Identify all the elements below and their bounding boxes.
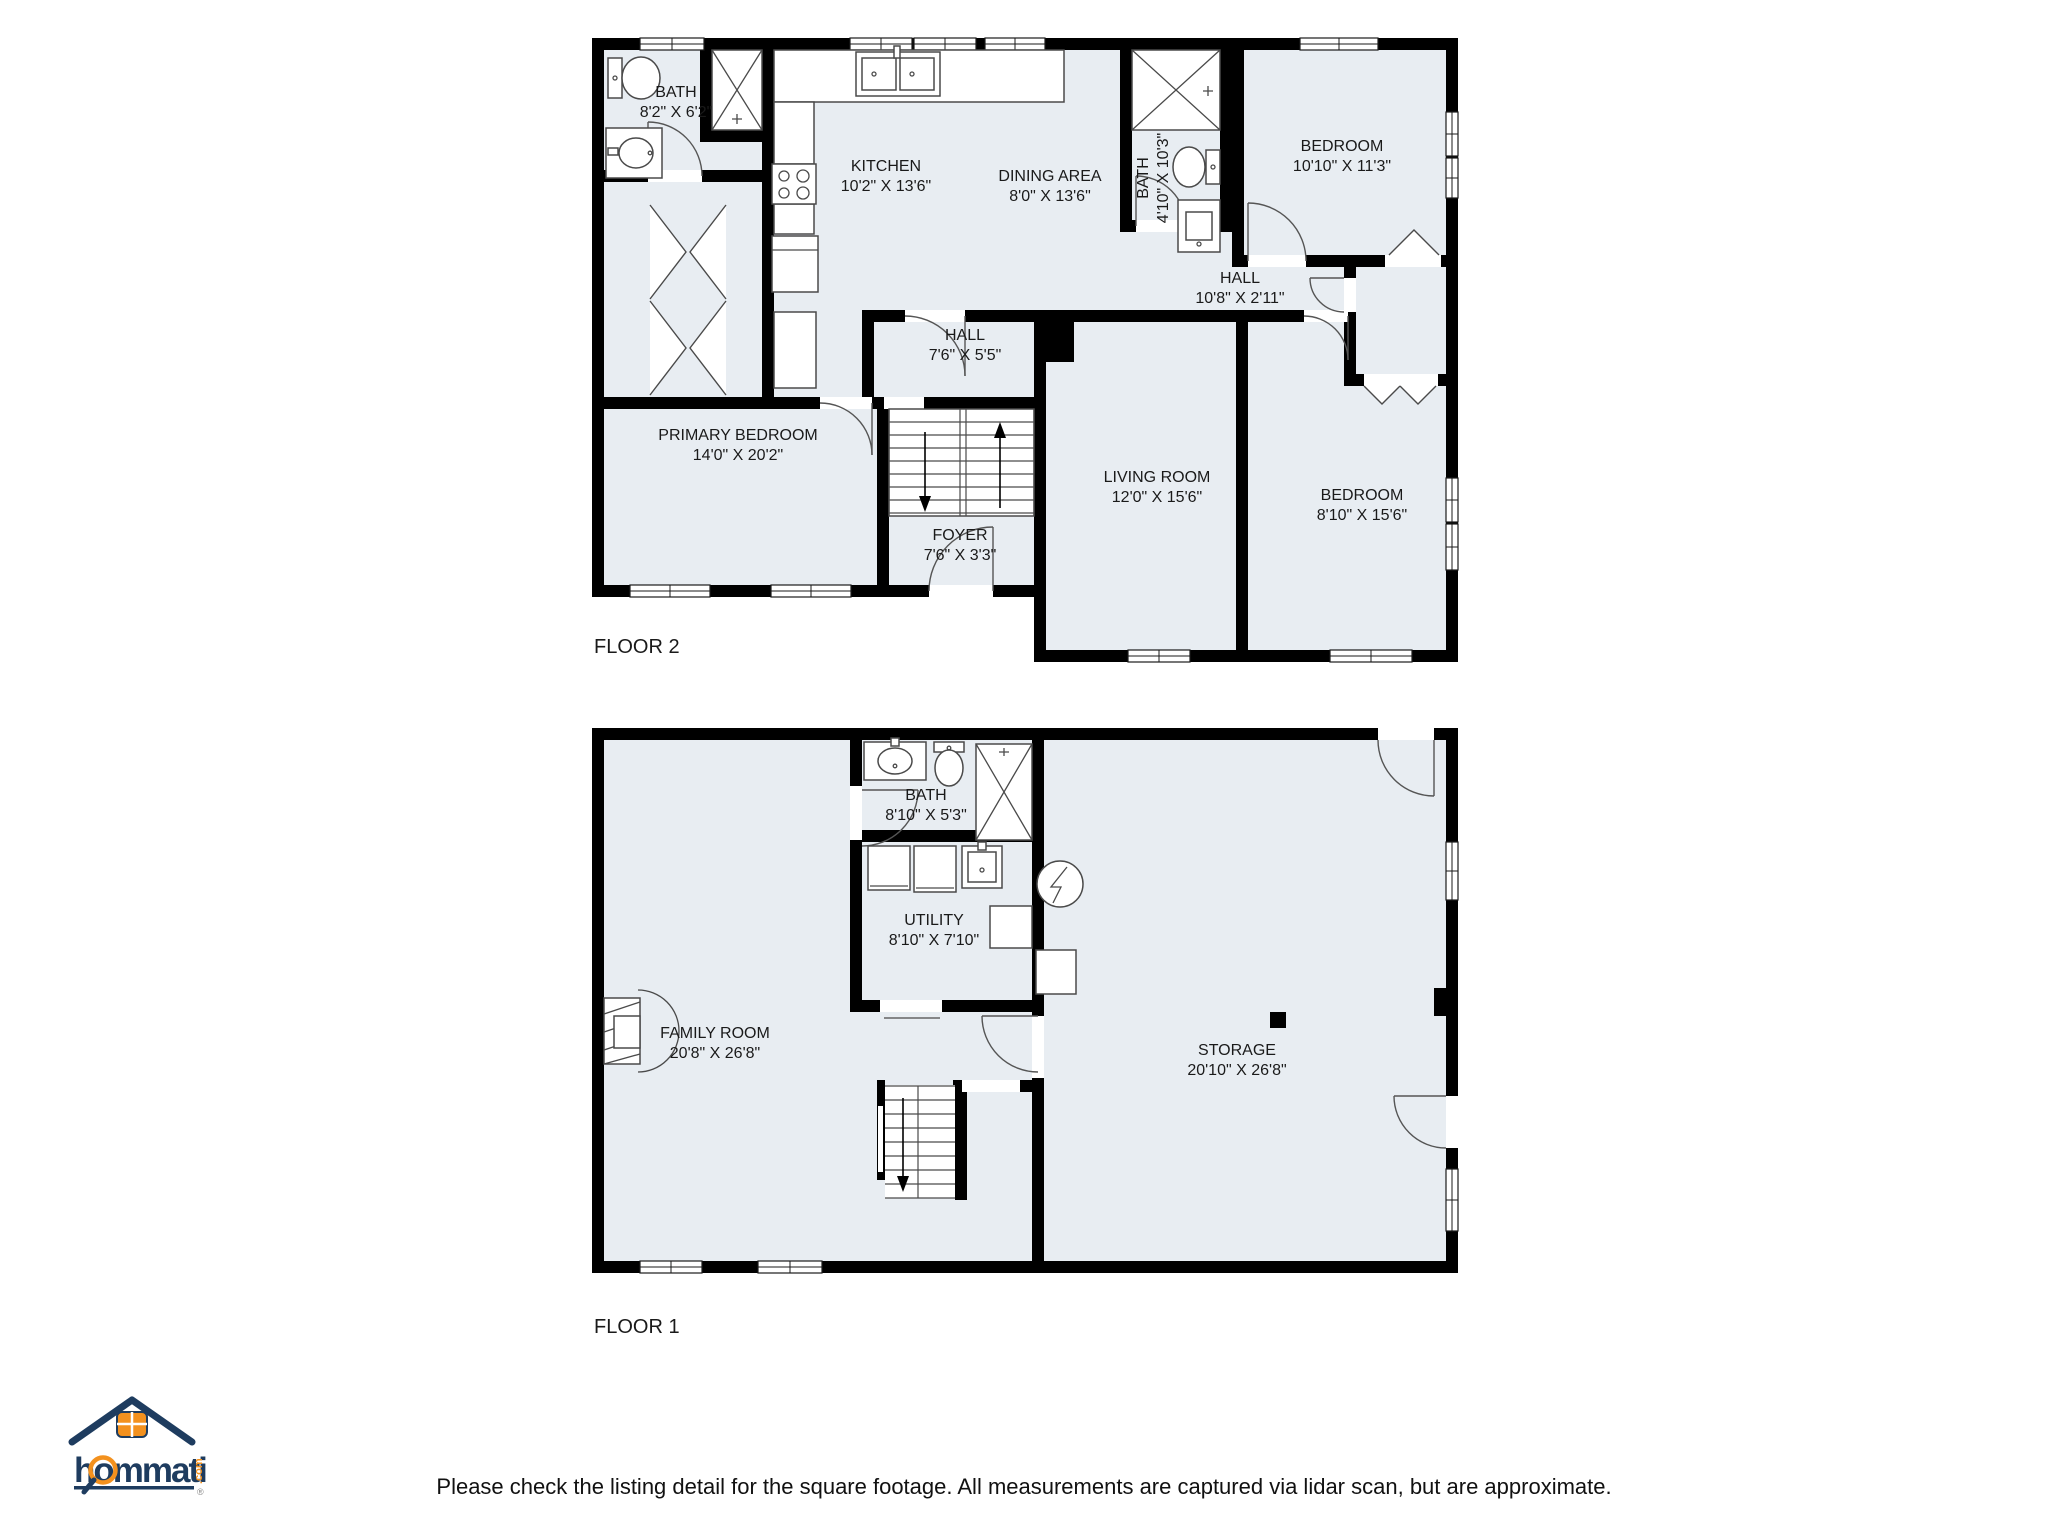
svg-text:BEDROOM: BEDROOM <box>1301 138 1384 155</box>
toilet-icon <box>934 742 964 786</box>
window <box>1330 650 1412 662</box>
vanity-sink-icon <box>1178 200 1220 252</box>
utility-sink-icon <box>962 842 1002 888</box>
window <box>1446 1169 1458 1231</box>
window <box>1446 158 1458 198</box>
svg-text:HALL: HALL <box>945 327 985 344</box>
floor-plan-image: BATH8'2" X 6'2" KITCHEN10'2" X 13'6" DIN… <box>0 0 2048 1536</box>
dryer-icon <box>914 846 956 892</box>
svg-text:7'6" X 3'3": 7'6" X 3'3" <box>924 547 997 564</box>
sink-icon <box>864 738 926 780</box>
window <box>640 38 704 50</box>
window <box>914 38 976 50</box>
floor1-plan: BATH8'10" X 5'3" UTILITY8'10" X 7'10" FA… <box>592 728 1458 1338</box>
logo-underline <box>74 1486 194 1490</box>
shower-icon <box>976 744 1032 840</box>
floor2-label: FLOOR 2 <box>594 636 680 658</box>
floor-plan-page: BATH8'2" X 6'2" KITCHEN10'2" X 13'6" DIN… <box>0 0 2048 1536</box>
window <box>850 38 912 50</box>
svg-text:BATH: BATH <box>905 787 946 804</box>
stairs-icon <box>889 409 1034 516</box>
shower-icon <box>712 50 762 130</box>
water-heater-icon <box>990 906 1032 948</box>
svg-text:7'6" X 5'5": 7'6" X 5'5" <box>929 347 1002 364</box>
house-icon <box>72 1400 192 1442</box>
svg-text:4'10" X 10'3": 4'10" X 10'3" <box>1155 133 1172 223</box>
window <box>758 1261 822 1273</box>
svg-text:BEDROOM: BEDROOM <box>1321 487 1404 504</box>
logo-registered-mark: ® <box>197 1487 204 1497</box>
disclaimer-text: Please check the listing detail for the … <box>436 1474 1611 1499</box>
toilet-icon <box>608 57 660 99</box>
svg-text:8'10" X 15'6": 8'10" X 15'6" <box>1317 507 1407 524</box>
svg-text:10'10" X 11'3": 10'10" X 11'3" <box>1293 158 1391 175</box>
svg-text:14'0" X 20'2": 14'0" X 20'2" <box>693 447 783 464</box>
shower-icon <box>1132 50 1220 130</box>
window <box>1300 38 1378 50</box>
svg-text:HALL: HALL <box>1220 270 1260 287</box>
svg-text:LIVING ROOM: LIVING ROOM <box>1104 469 1211 486</box>
sink-icon <box>606 128 662 178</box>
column-post <box>1270 1012 1286 1028</box>
window <box>1128 650 1190 662</box>
window <box>630 585 710 597</box>
window <box>1446 478 1458 522</box>
window <box>1446 842 1458 900</box>
svg-text:FOYER: FOYER <box>932 527 987 544</box>
hommati-logo: hommati .com ® <box>72 1400 206 1497</box>
svg-text:DINING AREA: DINING AREA <box>998 168 1101 185</box>
floor1-label: FLOOR 1 <box>594 1316 680 1338</box>
svg-text:FAMILY ROOM: FAMILY ROOM <box>660 1025 770 1042</box>
svg-text:STORAGE: STORAGE <box>1198 1042 1276 1059</box>
svg-text:BATH: BATH <box>655 84 696 101</box>
svg-text:20'10" X 26'8": 20'10" X 26'8" <box>1187 1062 1286 1079</box>
kitchen-sink-icon <box>856 46 940 96</box>
svg-text:8'0" X 13'6": 8'0" X 13'6" <box>1009 188 1091 205</box>
svg-text:8'2" X 6'2": 8'2" X 6'2" <box>640 104 713 121</box>
toilet-icon <box>1173 147 1220 187</box>
svg-text:10'8" X 2'11": 10'8" X 2'11" <box>1195 290 1284 307</box>
svg-text:12'0" X 15'6": 12'0" X 15'6" <box>1112 489 1202 506</box>
svg-text:8'10" X 7'10": 8'10" X 7'10" <box>889 932 979 949</box>
washer-icon <box>868 846 910 890</box>
window <box>1446 112 1458 156</box>
fridge-icon <box>772 236 818 292</box>
window <box>640 1261 702 1273</box>
wall-stub <box>1434 988 1446 1016</box>
pantry-cabinet-icon <box>774 312 816 388</box>
svg-text:10'2" X 13'6": 10'2" X 13'6" <box>841 178 931 195</box>
chimney-block <box>1034 322 1074 362</box>
svg-text:PRIMARY BEDROOM: PRIMARY BEDROOM <box>658 427 817 444</box>
stairs-icon <box>885 1085 955 1198</box>
svg-text:BATH: BATH <box>1135 157 1152 198</box>
window <box>985 38 1045 50</box>
stove-icon <box>772 164 816 204</box>
window <box>771 585 851 597</box>
window <box>1446 524 1458 570</box>
svg-text:KITCHEN: KITCHEN <box>851 158 921 175</box>
logo-tld-text: .com <box>193 1458 205 1484</box>
svg-text:8'10" X 5'3": 8'10" X 5'3" <box>885 807 967 824</box>
svg-text:UTILITY: UTILITY <box>904 912 964 929</box>
svg-text:20'8" X 26'8": 20'8" X 26'8" <box>670 1045 760 1062</box>
floor2-plan: BATH8'2" X 6'2" KITCHEN10'2" X 13'6" DIN… <box>592 38 1458 662</box>
logo-brand-text: hommati <box>74 1451 206 1490</box>
